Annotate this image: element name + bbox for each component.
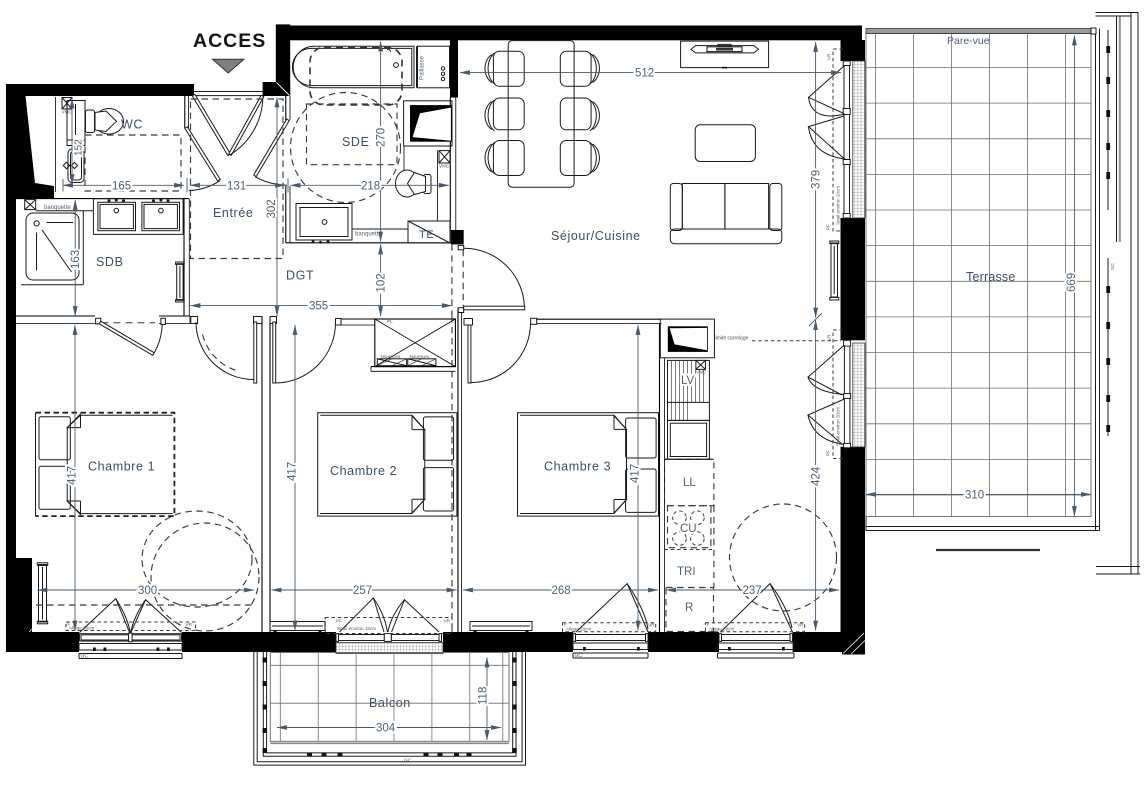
svg-text:Nourrices: Nourrices: [410, 354, 430, 359]
svg-text:379: 379: [811, 170, 823, 189]
svg-text:VR: VR: [827, 53, 832, 60]
svg-text:Pare-vue: Pare-vue: [947, 35, 990, 47]
svg-text:GC: GC: [404, 759, 412, 765]
svg-text:Terrasse: Terrasse: [966, 270, 1016, 284]
svg-text:Paillasse: Paillasse: [420, 55, 426, 80]
svg-text:Seuil environ 20cm: Seuil environ 20cm: [836, 407, 841, 446]
svg-text:417: 417: [287, 462, 299, 481]
svg-text:PF: PF: [826, 450, 831, 456]
svg-text:302: 302: [266, 199, 278, 218]
svg-text:LV: LV: [681, 375, 695, 387]
svg-text:310: 310: [965, 490, 984, 502]
svg-text:163: 163: [70, 250, 82, 269]
svg-text:669: 669: [1066, 273, 1078, 292]
svg-text:355: 355: [309, 301, 328, 313]
svg-text:257: 257: [353, 585, 372, 597]
svg-text:VR: VR: [444, 619, 451, 624]
svg-text:Seuil environ 15cm: Seuil environ 15cm: [337, 626, 376, 631]
svg-text:PL: PL: [387, 319, 393, 324]
svg-text:165: 165: [112, 181, 131, 193]
svg-text:102: 102: [376, 273, 388, 292]
svg-text:Nourrices: Nourrices: [381, 354, 401, 359]
svg-text:SDE: SDE: [342, 135, 370, 149]
svg-text:PF: PF: [826, 224, 831, 230]
svg-text:512: 512: [635, 68, 654, 80]
svg-text:VR: VR: [827, 334, 832, 341]
svg-text:VMC: VMC: [696, 370, 707, 375]
svg-text:Séjour/Cuisine: Séjour/Cuisine: [551, 229, 641, 243]
svg-text:TRI: TRI: [677, 566, 696, 578]
svg-text:Chambre 2: Chambre 2: [330, 464, 397, 478]
svg-text:304: 304: [376, 723, 396, 735]
svg-text:270: 270: [376, 128, 388, 147]
svg-text:VMC: VMC: [439, 164, 450, 169]
svg-text:VR: VR: [797, 623, 804, 628]
svg-text:GC: GC: [81, 654, 89, 660]
svg-text:banquette: banquette: [44, 205, 71, 211]
svg-text:GC: GC: [1110, 262, 1115, 270]
svg-text:Chambre 1: Chambre 1: [88, 460, 155, 474]
svg-text:SDB: SDB: [96, 255, 124, 269]
svg-text:VR: VR: [648, 623, 655, 628]
svg-text:TE: TE: [419, 229, 434, 241]
svg-text:PF: PF: [336, 619, 342, 624]
svg-text:Seuil environ 20cm: Seuil environ 20cm: [836, 186, 841, 225]
svg-text:Allège 50cm: Allège 50cm: [566, 627, 591, 632]
svg-text:ACCES: ACCES: [193, 30, 266, 52]
svg-text:237: 237: [743, 585, 762, 597]
svg-text:limite carrelage: limite carrelage: [715, 336, 749, 342]
svg-text:417: 417: [630, 464, 642, 483]
svg-text:424: 424: [811, 466, 823, 486]
svg-text:118: 118: [478, 687, 490, 705]
svg-text:218: 218: [361, 181, 380, 193]
svg-text:banquette: banquette: [355, 232, 382, 238]
svg-text:Allège 50cm: Allège 50cm: [709, 627, 734, 632]
svg-text:DGT: DGT: [286, 269, 314, 283]
svg-text:VR: VR: [186, 622, 193, 627]
svg-text:Allège 90cm: Allège 90cm: [69, 626, 94, 631]
svg-text:LL: LL: [683, 477, 696, 489]
svg-text:GC: GC: [575, 653, 583, 659]
svg-text:Entrée: Entrée: [213, 206, 253, 220]
svg-text:WC: WC: [121, 118, 143, 132]
svg-text:CU: CU: [680, 523, 697, 535]
svg-text:R: R: [685, 602, 693, 614]
svg-text:152: 152: [74, 139, 85, 156]
svg-text:Chambre 3: Chambre 3: [544, 460, 611, 474]
svg-text:268: 268: [552, 585, 571, 597]
svg-text:Balcon: Balcon: [369, 696, 411, 710]
svg-text:417: 417: [67, 466, 79, 485]
svg-text:131: 131: [227, 181, 246, 193]
svg-text:300: 300: [138, 585, 157, 597]
